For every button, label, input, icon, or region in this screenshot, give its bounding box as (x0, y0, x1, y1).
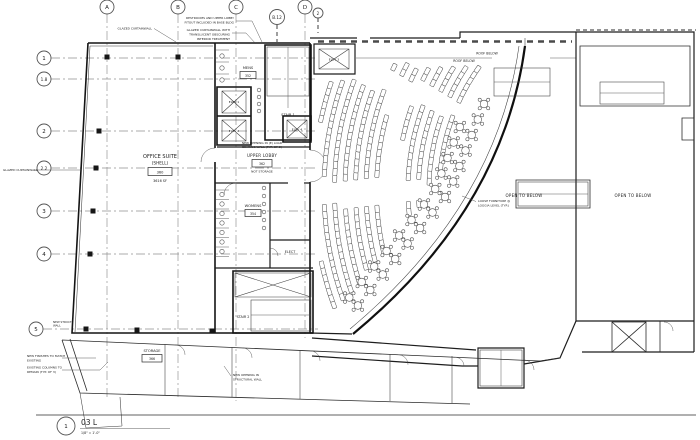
sheet-ref: 03 L (81, 418, 98, 427)
drawing-scale: 1/8" = 1'-0" (81, 431, 100, 435)
elev3-label: ELEV 3 (329, 58, 339, 62)
mens-number: 352 (245, 74, 251, 78)
grid-row-1: 1 (42, 56, 46, 62)
elev4-label: ELEV 4 (292, 128, 302, 132)
office-suite-area: 3616 SF (153, 179, 167, 183)
new-finishes-line2: EXISTING (27, 359, 42, 363)
new-opening-note-2: BEARING WALL (TYP. OF 2) (242, 145, 282, 149)
upper-lobby-number: 362 (259, 162, 265, 166)
grid-ref-b12: B.12 (272, 15, 282, 20)
loose-furniture-line2: LOGGIA LEVEL (TYP.) (478, 204, 509, 208)
restrooms-note-line1: RESTROOMS AND UPPER LOBBY (186, 16, 234, 20)
grid-bubbles-rows: 1 1.8 2 2.2 3 4 5 (29, 51, 51, 336)
new-finishes-line1: NEW FINISHES TO MATCH (27, 354, 65, 358)
translucent-note-line1: GLAZED CURTAINWALL WITH (187, 28, 230, 32)
roof-below-1: ROOF BELOW (476, 52, 498, 56)
womens-label: WOMENS (245, 204, 262, 208)
office-suite-sub: (SHELL) (152, 161, 169, 166)
existing-columns-line1: EXISTING COLUMNS TO (27, 366, 63, 370)
open-to-below-auditorium: OPEN TO BELOW (506, 193, 543, 198)
new-struct-line2: WALL (53, 324, 61, 328)
grid-row-5: 5 (34, 327, 38, 333)
floor-plan-svg: A B C D B.12 2 1 1.8 2 2.2 3 4 5 (0, 0, 700, 440)
glazed-curtainwall-top: GLAZED CURTAINWALL (118, 27, 153, 31)
annotation-labels: RESTROOMS AND UPPER LOBBY FITOUT INCLUDE… (3, 16, 651, 382)
grid-row-4: 4 (42, 252, 46, 258)
title-block: 1 03 L 1/8" = 1'-0" (36, 415, 696, 435)
translucent-note-line2: TRANSLUCENT OBSCURING (188, 33, 231, 37)
exterior-walls (72, 30, 696, 366)
storage-number: 366 (149, 357, 155, 361)
mens-label: MENS (243, 66, 254, 70)
translucent-note-line3: INTERIOR TREATMENT (197, 37, 230, 41)
roof-below-2: ROOF BELOW (453, 59, 475, 63)
loose-furniture-line1: LOOSE FURNITURE @ (478, 199, 510, 203)
grid-col-d: D (303, 5, 307, 11)
existing-columns-line2: REMAIN (TYP. OF 3) (27, 370, 56, 374)
struct-opening-line2: STRUCTURAL WALL (233, 378, 262, 382)
stair1-label: STAIR 1 (281, 113, 295, 117)
grid-col-b: B (176, 5, 180, 11)
elev1-label: ELEV 1 (229, 100, 239, 104)
keynote-bubble: 2 (317, 11, 320, 16)
upper-lobby-label: UPPER LOBBY (247, 153, 277, 158)
restrooms-note-line2: FITOUT INCLUDED IN BASE BLDG (184, 21, 234, 25)
elect-label: ELECT (285, 250, 297, 254)
storage-label: STORAGE (143, 349, 161, 353)
grid-row-2-2: 2.2 (41, 166, 48, 171)
grid-col-a: A (105, 5, 109, 11)
elev2-label: ELEV 2 (229, 129, 239, 133)
structural-grid (43, 14, 318, 401)
structural-columns (84, 55, 215, 334)
stair2-label: STAIR 2 (237, 315, 250, 319)
open-to-below-stage: OPEN TO BELOW (615, 193, 652, 198)
grid-row-3: 3 (42, 209, 46, 215)
upper-lobby-note: NOT STORAGE (251, 170, 273, 174)
glazed-curtainwall-left: GLAZED CURTAINWALL (3, 168, 38, 172)
stage-side (478, 46, 694, 388)
grid-col-c: C (234, 5, 238, 11)
office-suite-label: OFFICE SUITE (143, 154, 177, 160)
office-suite-number: 360 (157, 171, 165, 175)
grid-row-1-8: 1.8 (41, 77, 48, 82)
grid-row-2: 2 (42, 129, 46, 135)
floor-plan-sheet: A B C D B.12 2 1 1.8 2 2.2 3 4 5 (0, 0, 700, 440)
womens-number: 354 (250, 212, 256, 216)
struct-opening-line1: NEW OPENING IN (233, 373, 259, 377)
detail-number: 1 (64, 424, 68, 430)
